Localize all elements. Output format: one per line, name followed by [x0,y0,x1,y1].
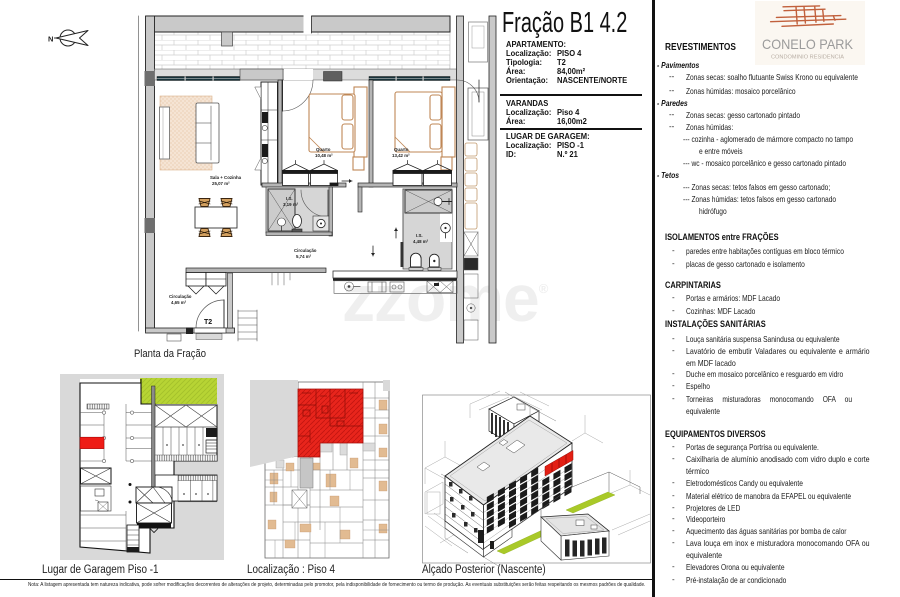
svg-text:CONELO PARK: CONELO PARK [762,36,854,52]
svg-text:25,07 m²: 25,07 m² [212,181,230,186]
svg-text:I.S.: I.S. [286,196,293,201]
svg-text:13,42 m²: 13,42 m² [392,153,410,158]
svg-text:3,19 m²: 3,19 m² [283,202,299,207]
svg-text:4,48 m²: 4,48 m² [413,239,429,244]
svg-text:4,65 m²: 4,65 m² [171,300,187,305]
svg-text:Circulação: Circulação [169,294,192,299]
svg-text:Circulação: Circulação [294,248,317,253]
svg-text:I.S.: I.S. [416,233,423,238]
svg-text:CONDOMINIO RESIDENCIA: CONDOMINIO RESIDENCIA [771,55,845,61]
svg-text:Quarto: Quarto [316,147,331,152]
svg-text:10,48 m²: 10,48 m² [315,153,333,158]
svg-text:5,74 m²: 5,74 m² [296,254,312,259]
svg-text:Quarto: Quarto [394,147,409,152]
svg-text:Sala + Cozinha: Sala + Cozinha [210,175,242,180]
svg-text:T2: T2 [204,319,212,326]
svg-text:N: N [48,35,53,44]
